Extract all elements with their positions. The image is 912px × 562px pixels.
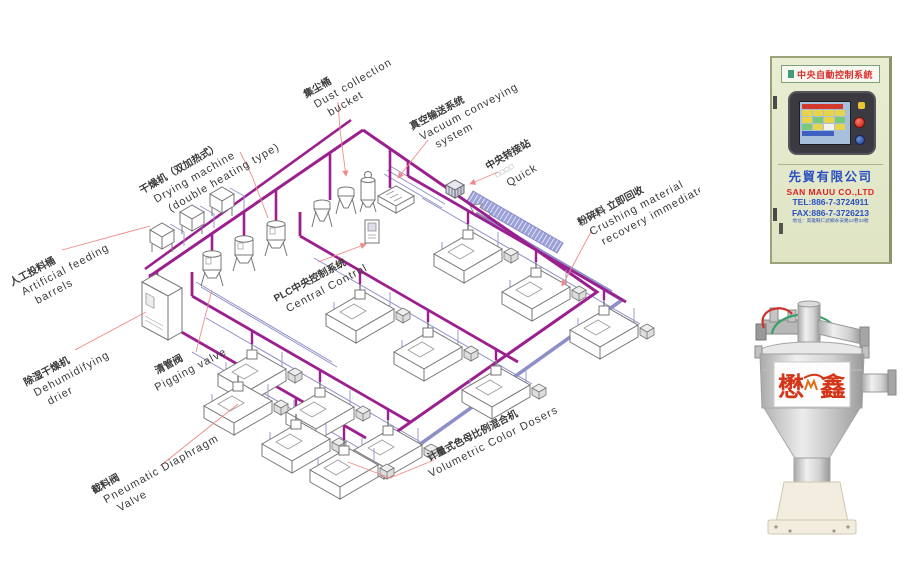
screen-cell [835, 110, 845, 116]
hopper-receiver [336, 187, 356, 214]
inlet-pipe-top [798, 301, 820, 307]
cabinet-latch [779, 223, 783, 234]
hopper-cone [764, 408, 860, 460]
screen-row [802, 124, 848, 130]
system-diagram: 人工投料桶 Artificial feeding barrels 干燥机（双加热… [0, 0, 700, 562]
central-transfer-station [446, 180, 464, 198]
side-pipe-lower [862, 370, 896, 395]
screen-red-bar [802, 104, 843, 109]
button-blue [855, 135, 865, 145]
drying-machine [233, 236, 255, 271]
company-address: 地址：高雄縣仁武鄉永安路12巷33號 [788, 219, 873, 225]
feeding-barrel [150, 223, 184, 252]
dehumidifying-dryer [142, 274, 182, 340]
company-info: 先貿有限公司 SAN MAUU CO.,LTD TEL:886-7-372491… [776, 170, 885, 226]
inlet-pipe [798, 304, 820, 342]
screen-row [802, 110, 848, 116]
touch-panel-bezel [788, 91, 876, 155]
brand-char-right: 鑫 [820, 372, 846, 402]
label-central-transfer-station: 中央转接站 □□□□ Quick [483, 136, 545, 194]
company-name-en: SAN MAUU CO.,LTD [776, 187, 885, 198]
screen-cell [802, 110, 812, 116]
touch-screen [799, 101, 851, 145]
banner-text: 中央自動控制系統 [797, 68, 873, 81]
outlet-cylinder [794, 458, 830, 484]
control-cabinet-photo: 中央自動控制系統 先貿有限公司 [770, 56, 892, 264]
feeding-barrel [180, 205, 214, 234]
brand-label: 懋 鑫 [774, 362, 850, 407]
company-tel: TEL:886-7-3724911 [776, 197, 885, 208]
company-name-zh: 先貿有限公司 [776, 170, 885, 186]
central-feeding-system-page: 人工投料桶 Artificial feeding barrels 干燥机（双加热… [0, 0, 912, 562]
screen-cell [802, 124, 812, 130]
indicator-yellow [858, 102, 865, 109]
screen-blue-bar [802, 131, 834, 136]
button-red [854, 117, 865, 128]
label-artificial-feeding-barrels: 人工投料桶 Artificial feeding barrels [7, 229, 118, 314]
screen-cell [835, 117, 845, 123]
screen-cell [802, 117, 812, 123]
dust-collection-bucket [360, 172, 376, 213]
screen-cell [824, 117, 834, 123]
cabinet-banner: 中央自動控制系統 [781, 65, 880, 83]
label-en: Pneumatic Diaphragm [102, 433, 221, 506]
plc-control-box [365, 220, 379, 243]
label-pneumatic-diaphragm-valve: 截料阀 Pneumatic Diaphragm Valve [89, 419, 228, 521]
label-dehumidifying-drier: 除湿干燥机 Dehumidifying drier [21, 336, 118, 414]
label-dust-collection-bucket: 集尘桶 Dust collection bucket [300, 43, 401, 125]
banner-mark-icon [788, 70, 794, 78]
drying-machine [201, 251, 223, 286]
hinge [773, 96, 777, 109]
screen-cell [813, 124, 823, 130]
screen-row [802, 117, 848, 123]
molding-machine [462, 360, 546, 419]
label-pigging-valve: 清管阀 Pigging valve [145, 332, 229, 394]
drying-machine [265, 221, 287, 256]
base-pedestal [768, 482, 856, 534]
vacuum-conveying-unit [378, 186, 414, 213]
screen-cell [824, 110, 834, 116]
screen-cell [813, 117, 823, 123]
brand-char-left: 懋 [778, 372, 804, 402]
hopper-loader-photo: 懋 鑫 [712, 298, 902, 538]
label-crushing-material-recovery: 粉碎料 立即回收 Crushing material recovery imme… [575, 152, 700, 253]
company-fax: FAX:886-7-3726213 [776, 208, 885, 219]
hopper-receiver [312, 200, 332, 227]
screen-cell [835, 124, 845, 130]
screen-cell [824, 124, 834, 130]
door-seam [778, 164, 883, 165]
label-drying-machine: 干燥机（双加热式） Drying machine (double heating… [137, 114, 282, 222]
screen-cell [813, 110, 823, 116]
